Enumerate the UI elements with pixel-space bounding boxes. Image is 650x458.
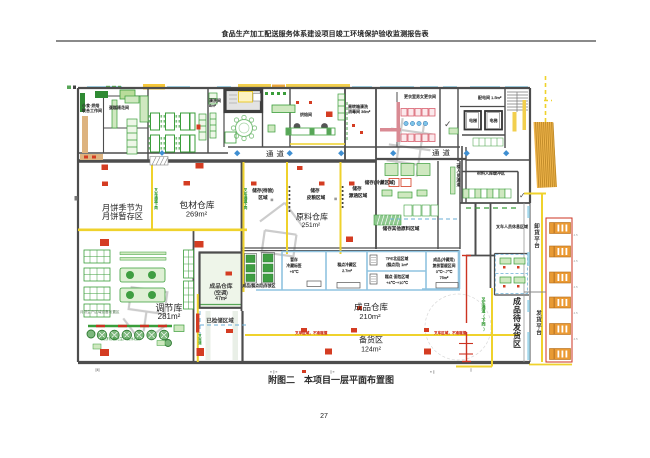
svg-text:叉车人员休息区域: 叉车人员休息区域 — [496, 223, 528, 229]
svg-text:月饼季节为: 月饼季节为 — [102, 203, 143, 213]
svg-text:糕点冷藏区: 糕点冷藏区 — [338, 262, 357, 267]
svg-text:+5℃: +5℃ — [290, 270, 299, 274]
svg-text:叉车通道(下同): 叉车通道(下同) — [482, 297, 487, 331]
svg-text:发货平台: 发货平台 — [535, 309, 542, 337]
svg-text:电梯: 电梯 — [490, 117, 498, 123]
svg-text:+4℃~+10℃: +4℃~+10℃ — [386, 281, 408, 285]
svg-text:二楼人员通道: 二楼人员通道 — [457, 160, 462, 188]
svg-text:269m²: 269m² — [186, 210, 208, 219]
svg-text:冷藏标签: 冷藏标签 — [286, 263, 301, 268]
svg-text:叉车通道下同: 叉车通道下同 — [243, 188, 248, 210]
svg-text:2.7m²: 2.7m² — [342, 269, 352, 273]
svg-text:联合工作间: 联合工作间 — [82, 107, 102, 113]
svg-text:〈月饼机械化生产流水线〉: 〈月饼机械化生产流水线〉 — [98, 336, 141, 341]
svg-text:✓: ✓ — [444, 119, 452, 129]
svg-text:电梯: 电梯 — [469, 117, 477, 123]
svg-text:配电间 1.5m²: 配电间 1.5m² — [478, 94, 502, 100]
svg-text:区域: 区域 — [258, 194, 268, 200]
svg-text:∥‖∥: ∥‖∥ — [95, 368, 100, 372]
svg-text:叉车通道下同: 叉车通道下同 — [153, 188, 158, 210]
svg-text:(糕点用) 1m²: (糕点用) 1m² — [386, 262, 408, 267]
svg-text:∥: ∥ — [470, 368, 472, 372]
svg-text:原料仓库: 原料仓库 — [296, 212, 328, 222]
svg-text:成品仓库: 成品仓库 — [354, 302, 389, 312]
svg-text:储存(待验): 储存(待验) — [252, 187, 274, 194]
svg-text:通道: 通道 — [432, 148, 453, 158]
svg-text:≡ ∥ ≡: ≡ ∥ ≡ — [270, 370, 278, 374]
svg-text:储存: 储存 — [352, 185, 362, 192]
svg-text:卸货平台: 卸货平台 — [533, 222, 540, 250]
svg-text:复核暂缓区间: 复核暂缓区间 — [433, 263, 456, 268]
svg-text:消毒间 36m²: 消毒间 36m² — [348, 108, 371, 114]
svg-text:皮粮区域: 皮粮区域 — [307, 194, 326, 201]
svg-text:4.5: 4.5 — [574, 337, 579, 341]
svg-text:∥ ≡: ∥ ≡ — [330, 370, 335, 374]
svg-text:叉车道: 叉车道 — [197, 334, 201, 345]
svg-text:8m²: 8m² — [209, 103, 217, 108]
svg-text:✓: ✓ — [519, 191, 526, 200]
svg-text:27: 27 — [320, 413, 328, 420]
svg-text:月饼暂存区: 月饼暂存区 — [102, 211, 143, 221]
svg-text:储存(冷藏区域): 储存(冷藏区域) — [365, 179, 396, 186]
svg-text:124m²: 124m² — [361, 347, 382, 354]
svg-text:成品(糕点用)存放区: 成品(糕点用)存放区 — [243, 283, 276, 288]
svg-text:暂存: 暂存 — [290, 257, 298, 262]
svg-text:TPE北运区域: TPE北运区域 — [386, 256, 409, 261]
svg-text:≡ ∥: ≡ ∥ — [430, 370, 435, 374]
svg-text:叉车区域，不准碰撞: 叉车区域，不准碰撞 — [295, 330, 328, 335]
svg-text:储存其他原料区域: 储存其他原料区域 — [383, 225, 420, 232]
svg-text:281m²: 281m² — [158, 312, 181, 321]
svg-text:0℃~-7℃: 0℃~-7℃ — [436, 270, 453, 274]
svg-text:包材仓库: 包材仓库 — [179, 199, 214, 210]
svg-text:47m²: 47m² — [215, 296, 227, 302]
svg-text:4.5: 4.5 — [574, 285, 579, 289]
svg-text:糕点·面包区域: 糕点·面包区域 — [385, 274, 409, 279]
svg-text:叉车区域，不准碰撞: 叉车区域，不准碰撞 — [434, 330, 467, 335]
svg-text:210m²: 210m² — [359, 312, 381, 321]
svg-text:已检储区域: 已检储区域 — [206, 317, 234, 325]
svg-text:75m²: 75m² — [440, 276, 449, 280]
svg-text:材料入库缓冲区: 材料入库缓冲区 — [477, 170, 505, 176]
svg-text:烘焙间: 烘焙间 — [300, 111, 312, 117]
svg-text:蛋糕裱花间: 蛋糕裱花间 — [109, 104, 129, 110]
svg-text:4.5: 4.5 — [574, 311, 579, 315]
svg-text:4.5: 4.5 — [574, 233, 579, 237]
svg-text:成品(冷藏用): 成品(冷藏用) — [433, 257, 455, 262]
svg-text:成品待发货区: 成品待发货区 — [513, 296, 522, 349]
svg-text:月饼生产区域设备布置区: 月饼生产区域设备布置区 — [80, 309, 120, 314]
svg-text:4.5: 4.5 — [574, 259, 579, 263]
svg-text:储存: 储存 — [310, 187, 320, 194]
svg-text:附图二 本项目一层平面布置图: 附图二 本项目一层平面布置图 — [268, 374, 394, 385]
svg-text:更衣室男女更衣间: 更衣室男女更衣间 — [404, 93, 436, 99]
svg-text:251m²: 251m² — [302, 222, 321, 229]
svg-text:食品生产加工配送服务体系建设项目竣工环境保护验收监测报告表: 食品生产加工配送服务体系建设项目竣工环境保护验收监测报告表 — [222, 29, 429, 38]
svg-text:备货区: 备货区 — [359, 335, 383, 345]
svg-text:源涵区域: 源涵区域 — [349, 192, 368, 199]
svg-text:通道: 通道 — [266, 149, 287, 159]
svg-text:成品仓库: 成品仓库 — [209, 282, 232, 290]
